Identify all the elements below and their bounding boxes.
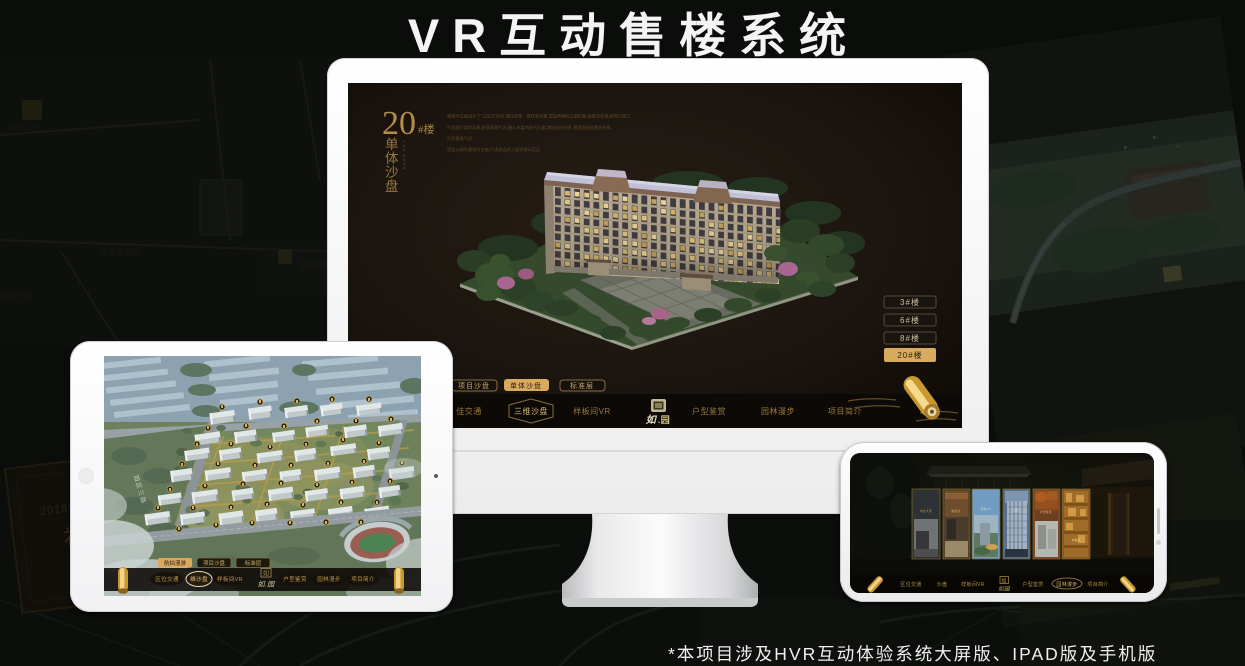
svg-text:20#楼: 20#楼 bbox=[897, 350, 922, 360]
svg-text:精装修: 精装修 bbox=[952, 509, 961, 513]
svg-text:区位交通: 区位交通 bbox=[900, 581, 921, 588]
svg-text:西区环路: 西区环路 bbox=[0, 290, 32, 300]
svg-text:单体沙盘: 单体沙盘 bbox=[510, 381, 542, 390]
svg-text:如.园: 如.园 bbox=[258, 581, 276, 589]
svg-text:中央商务区: 中央商务区 bbox=[100, 247, 140, 257]
svg-text:户型鉴赏: 户型鉴赏 bbox=[1022, 581, 1043, 588]
svg-text:体: 体 bbox=[385, 151, 399, 166]
svg-text:如: 如 bbox=[1001, 578, 1006, 585]
svg-text:户型鉴赏: 户型鉴赏 bbox=[692, 406, 726, 416]
svg-text:区位交通: 区位交通 bbox=[155, 575, 179, 583]
svg-text:建筑外立面设计了"三段式"结构,通过线条、壁柱等元素,塑造典: 建筑外立面设计了"三段式"结构,通过线条、壁柱等元素,塑造典雅的立面形象,高级灰… bbox=[447, 113, 631, 120]
svg-text:样板间VR: 样板间VR bbox=[217, 575, 243, 583]
svg-text:户型鉴赏: 户型鉴赏 bbox=[283, 575, 307, 583]
svg-text:航拍漫游: 航拍漫游 bbox=[164, 559, 187, 567]
svg-text:如: 如 bbox=[646, 414, 658, 426]
svg-text:园林漫步: 园林漫步 bbox=[1056, 581, 1077, 588]
svg-text:打造现代简约风格,彰显高雅气质,融入丰富的现代元素,增加竖向: 打造现代简约风格,彰显高雅气质,融入丰富的现代元素,增加竖向线条,营造挺拔的建筑… bbox=[447, 124, 612, 131]
svg-text:标准层: 标准层 bbox=[570, 381, 594, 390]
svg-text:#楼: #楼 bbox=[418, 122, 435, 136]
svg-text:实景: 实景 bbox=[1013, 508, 1019, 512]
svg-text:项目简介: 项目简介 bbox=[351, 575, 375, 583]
svg-text:单: 单 bbox=[385, 137, 399, 152]
svg-text:户型鉴赏: 户型鉴赏 bbox=[1040, 510, 1052, 514]
svg-text:.园: .园 bbox=[658, 415, 671, 425]
svg-text:项目沙盘: 项目沙盘 bbox=[458, 381, 490, 390]
svg-text:如园: 如园 bbox=[998, 586, 1011, 593]
svg-text:如: 如 bbox=[263, 570, 269, 578]
svg-text:园林漫步: 园林漫步 bbox=[317, 575, 341, 583]
svg-text:沙: 沙 bbox=[385, 165, 399, 180]
svg-text:项目以绿色景观为主轴,打造高品质人居环境示范区: 项目以绿色景观为主轴,打造高品质人居环境示范区 bbox=[447, 146, 540, 153]
svg-text:中式大宅: 中式大宅 bbox=[920, 509, 932, 513]
svg-text:园林漫步: 园林漫步 bbox=[761, 406, 795, 416]
svg-text:园林VR: 园林VR bbox=[981, 507, 991, 511]
svg-text:盘: 盘 bbox=[385, 178, 399, 194]
svg-text:标准层: 标准层 bbox=[245, 559, 262, 567]
svg-text:样板间VR: 样板间VR bbox=[961, 581, 985, 588]
svg-text:样板间VR: 样板间VR bbox=[573, 406, 611, 416]
svg-text:样板间: 样板间 bbox=[1072, 538, 1080, 542]
svg-text:3#楼: 3#楼 bbox=[900, 297, 920, 307]
svg-text:沙盘: 沙盘 bbox=[937, 581, 948, 588]
svg-text:项目简介: 项目简介 bbox=[1087, 581, 1108, 588]
svg-text:尽显尊贵气质.: 尽显尊贵气质. bbox=[447, 135, 473, 142]
svg-text:城市之光: 城市之光 bbox=[8, 122, 40, 132]
svg-text:6#楼: 6#楼 bbox=[900, 315, 920, 325]
svg-text:佳交通: 佳交通 bbox=[456, 406, 482, 416]
svg-text:维沙盘: 维沙盘 bbox=[190, 575, 208, 583]
svg-text:8#楼: 8#楼 bbox=[900, 333, 920, 343]
svg-text:三维沙盘: 三维沙盘 bbox=[514, 406, 548, 416]
svg-text:项目沙盘: 项目沙盘 bbox=[203, 559, 226, 567]
